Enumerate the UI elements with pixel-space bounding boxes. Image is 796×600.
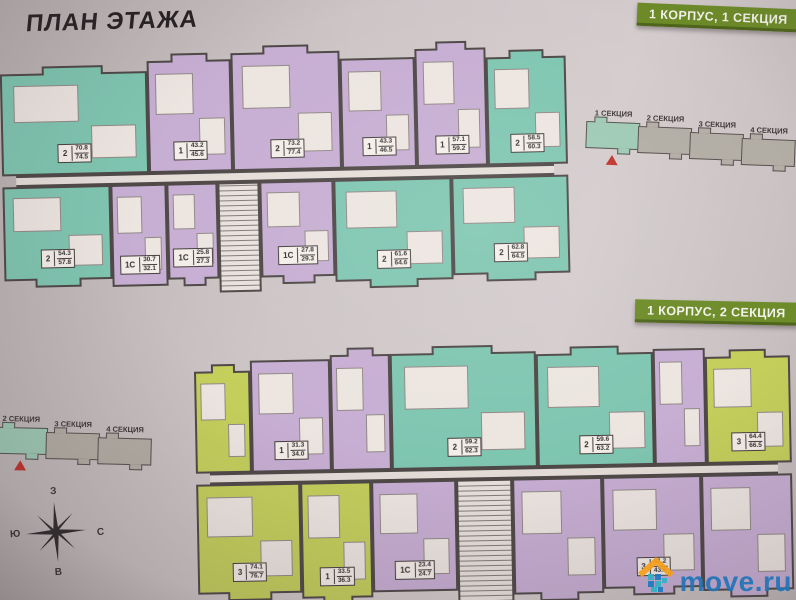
apartment-label: 1 43.245.6 — [173, 141, 208, 161]
apartment-unit: 1 43.245.6 — [146, 59, 233, 173]
compass-left-label: Ю — [10, 529, 21, 541]
locator-section: 3 СЕКЦИЯ — [689, 119, 744, 161]
compass-top-label: З — [50, 486, 57, 497]
total-area: 45.6 — [190, 151, 205, 158]
apartment-unit: 2 58.560.3 — [485, 56, 567, 166]
apartment-type: 2 — [513, 139, 522, 147]
room — [404, 366, 469, 410]
room — [242, 65, 291, 109]
locator-section: 3 СЕКЦИЯ — [45, 419, 100, 460]
watermark-text: move.ru — [680, 569, 792, 594]
label-divider — [414, 563, 415, 578]
badge-1-label: 1 КОРПУС, 1 СЕКЦИЯ — [649, 7, 788, 27]
building-section-badge-1: 1 КОРПУС, 1 СЕКЦИЯ — [637, 3, 796, 33]
balcony — [323, 596, 354, 600]
total-area: 66.5 — [748, 442, 763, 449]
house-icon — [636, 556, 676, 594]
apartment-areas: 57.159.2 — [451, 137, 466, 152]
label-divider — [334, 569, 335, 584]
floorplan-section-1: 2 70.874.5 1 43.245.6 — [0, 46, 571, 290]
apartment-areas: 73.277.4 — [287, 141, 302, 156]
total-area: 36.3 — [337, 577, 352, 584]
label-divider — [448, 137, 449, 152]
room — [480, 412, 525, 451]
label-divider — [745, 434, 746, 449]
room — [13, 197, 61, 232]
apartment-type: 1 — [323, 573, 332, 581]
apartment-type: 1С — [398, 566, 412, 574]
total-area: 76.7 — [249, 572, 264, 579]
badge-2-label: 1 КОРПУС, 2 СЕКЦИЯ — [647, 304, 786, 321]
apartment-label: 2 73.277.4 — [270, 139, 305, 159]
room — [713, 368, 751, 408]
total-area: 27.3 — [196, 258, 211, 265]
apartment-unit — [217, 182, 261, 293]
room — [348, 70, 382, 111]
apartment-unit: 3 64.466.5 — [705, 355, 792, 464]
label-divider — [192, 250, 193, 265]
apartment-label: 2 59.262.3 — [447, 437, 481, 457]
apartment-unit: 2 62.864.5 — [451, 175, 570, 276]
apartment-areas: 59.262.3 — [464, 439, 479, 454]
room — [567, 537, 595, 575]
room — [608, 411, 645, 449]
apartment-unit: 1 31.334.0 — [250, 359, 332, 473]
locator-section-shape — [97, 437, 152, 465]
balcony — [262, 44, 308, 54]
total-area: 63.2 — [596, 445, 611, 452]
label-divider — [297, 248, 298, 263]
total-area: 74.5 — [74, 153, 89, 160]
apartment-type: 2 — [61, 149, 70, 157]
apartment-unit: 2 70.874.5 — [0, 71, 149, 176]
compass-right-label: С — [97, 527, 105, 538]
balcony — [540, 591, 578, 600]
apartment-unit: 1С 23.424.7 — [371, 480, 458, 593]
locator-section-shape — [45, 432, 100, 460]
room — [206, 496, 253, 537]
room — [462, 187, 515, 224]
current-section-marker — [606, 155, 618, 165]
apartment-label: 3 74.176.7 — [233, 562, 267, 582]
apartment-label: 1 57.159.2 — [435, 135, 470, 155]
apartment-label: 1 33.536.3 — [320, 567, 354, 587]
label-divider — [461, 440, 462, 455]
apartment-areas: 59.663.2 — [595, 437, 610, 452]
apartment-areas: 27.829.3 — [300, 247, 315, 262]
apartment-unit — [329, 354, 392, 471]
room — [117, 196, 143, 234]
room — [684, 408, 701, 446]
section-locator-1: 1 СЕКЦИЯ 2 СЕКЦИЯ 3 СЕКЦИЯ 4 СЕКЦИЯ — [585, 108, 794, 156]
balcony — [509, 49, 544, 59]
balcony — [36, 278, 82, 288]
apartment-type: 1 — [365, 142, 374, 150]
balcony — [435, 41, 466, 51]
apartment-unit: 1С 27.829.3 — [259, 180, 336, 278]
apartment-label: 2 59.663.2 — [579, 435, 613, 455]
apartment-areas: 70.874.5 — [74, 145, 89, 160]
apartment-type: 2 — [582, 441, 591, 449]
compass-rose: З Ю С В — [9, 485, 103, 579]
apartment-label: 2 61.664.6 — [377, 249, 412, 269]
room — [91, 124, 137, 158]
label-divider — [284, 141, 285, 156]
balcony — [729, 349, 766, 359]
total-area: 46.5 — [379, 147, 394, 154]
room — [406, 230, 443, 264]
locator-section: 2 СЕКЦИЯ — [637, 113, 692, 155]
total-area: 60.3 — [527, 143, 542, 150]
apartment-unit: 2 54.357.8 — [2, 185, 112, 281]
apartment-label: 1С 30.732.1 — [120, 255, 160, 275]
locator-section-shape — [0, 427, 48, 455]
apartment-label: 1С 23.424.7 — [395, 560, 435, 580]
apartment-type: 1С — [281, 251, 295, 259]
total-area: 62.3 — [464, 447, 479, 454]
apartment-unit: 1 33.536.3 — [300, 481, 373, 598]
label-divider — [592, 437, 593, 452]
label-divider — [288, 443, 289, 458]
label-divider — [524, 136, 525, 151]
apartment-label: 1С 25.827.3 — [173, 248, 213, 268]
balcony — [171, 53, 208, 63]
total-area: 59.2 — [452, 145, 467, 152]
apartment-areas: 62.864.5 — [511, 245, 526, 260]
apartment-unit — [512, 477, 604, 595]
room — [524, 226, 561, 259]
apartment-label: 2 54.357.8 — [41, 249, 76, 269]
locator-section: 2 СЕКЦИЯ — [0, 414, 48, 455]
label-divider — [54, 251, 55, 266]
apartment-type: 2 — [44, 255, 53, 263]
label-divider — [375, 139, 376, 154]
room — [345, 190, 398, 228]
label-divider — [187, 143, 188, 158]
apartment-areas: 74.176.7 — [249, 564, 264, 579]
apartment-areas: 30.732.1 — [142, 257, 157, 272]
apartment-areas: 33.536.3 — [337, 569, 352, 584]
apartment-areas: 31.334.0 — [291, 443, 306, 458]
floorplan-2-top-row: 1 31.334.0 2 — [194, 346, 792, 473]
total-area: 77.4 — [287, 149, 302, 156]
apartment-areas: 25.827.3 — [195, 250, 210, 265]
apartment-areas: 43.245.6 — [190, 143, 205, 158]
label-divider — [390, 252, 391, 267]
apartment-unit: 2 73.277.4 — [231, 51, 342, 171]
move-ru-watermark: move.ru — [636, 556, 792, 594]
balcony — [183, 277, 206, 287]
total-area: 24.7 — [417, 570, 432, 577]
apartment-type: 2 — [451, 443, 460, 451]
room — [200, 383, 226, 421]
balcony — [42, 65, 103, 75]
room — [336, 368, 364, 411]
locator-section: 4 СЕКЦИЯ — [741, 125, 796, 167]
apartment-unit — [194, 371, 252, 474]
total-area: 29.3 — [300, 255, 315, 262]
apartment-type: 1С — [123, 261, 137, 269]
balcony — [228, 591, 272, 600]
page-title: ПЛАН ЭТАЖА — [25, 6, 200, 39]
label-divider — [246, 565, 247, 580]
locator-section: 1 СЕКЦИЯ — [585, 108, 640, 150]
apartment-unit: 1С 30.732.1 — [110, 184, 168, 287]
apartment-label: 1 43.346.5 — [362, 136, 397, 156]
room — [155, 73, 193, 115]
locator-section-shape — [741, 138, 796, 167]
apartment-type: 2 — [273, 145, 282, 153]
apartment-unit: 1 43.346.5 — [340, 57, 418, 169]
apartment-unit: 2 59.663.2 — [536, 352, 656, 467]
room — [547, 366, 600, 408]
total-area: 34.0 — [291, 451, 306, 458]
apartment-unit: 1 57.159.2 — [415, 47, 488, 167]
room — [659, 362, 683, 405]
balcony — [487, 271, 536, 281]
apartment-unit: 3 74.176.7 — [196, 483, 302, 595]
current-section-marker — [14, 460, 26, 470]
balcony — [347, 347, 374, 357]
apartment-areas: 61.664.6 — [393, 251, 408, 266]
total-area: 64.5 — [511, 253, 526, 260]
apartment-areas: 58.560.3 — [527, 135, 542, 150]
apartment-label: 2 58.560.3 — [510, 133, 545, 153]
apartment-type: 3 — [236, 568, 245, 576]
apartment-unit: 1С 25.827.3 — [166, 183, 219, 280]
apartment-label: 2 62.864.5 — [494, 243, 529, 263]
room — [422, 62, 454, 106]
apartment-label: 1 31.334.0 — [274, 441, 308, 461]
apartment-type: 3 — [735, 438, 744, 446]
apartment-label: 1С 27.829.3 — [278, 245, 318, 265]
balcony — [370, 278, 419, 288]
locator-section: 4 СЕКЦИЯ — [97, 424, 152, 465]
room — [228, 424, 246, 458]
apartment-label: 2 70.874.5 — [58, 143, 93, 163]
balcony — [432, 345, 493, 355]
label-divider — [71, 146, 72, 161]
room — [612, 489, 657, 531]
floorplan-1-bottom-row: 2 54.357.8 1С 30.732.1 — [2, 175, 570, 290]
room — [13, 84, 79, 123]
apartment-unit: 2 59.262.3 — [390, 351, 538, 470]
apartment-areas: 54.357.8 — [57, 251, 72, 266]
room — [366, 414, 386, 452]
apartment-areas: 43.346.5 — [378, 139, 393, 154]
room — [521, 491, 562, 534]
compass-bottom-label: В — [54, 567, 62, 578]
apartment-areas: 23.424.7 — [417, 562, 432, 577]
locator-section-shape — [689, 132, 744, 161]
apartment-unit — [653, 348, 706, 465]
room — [172, 194, 196, 230]
room — [711, 487, 752, 530]
balcony — [283, 274, 316, 284]
total-area: 64.6 — [394, 259, 409, 266]
section-locator-2: 1 СЕКЦИЯ 2 СЕКЦИЯ 3 СЕКЦИЯ 4 СЕКЦИЯ — [0, 409, 150, 454]
compass-star-icon — [22, 498, 90, 566]
locator-section-shape — [585, 121, 640, 150]
room — [267, 192, 301, 228]
room — [380, 493, 418, 534]
label-divider — [508, 245, 509, 260]
apartment-type: 2 — [497, 249, 506, 257]
apartment-areas: 64.466.5 — [748, 434, 763, 449]
apartment-type: 1С — [176, 254, 190, 262]
locator-section-shape — [637, 126, 692, 155]
apartment-unit: 2 61.664.6 — [334, 177, 454, 282]
floorplan-1-top-row: 2 70.874.5 1 43.245.6 — [0, 46, 568, 177]
apartment-type: 1 — [277, 446, 286, 454]
apartment-type: 1 — [438, 141, 447, 149]
total-area: 32.1 — [142, 265, 157, 272]
balcony — [569, 346, 619, 356]
label-divider — [139, 257, 140, 272]
room — [308, 495, 340, 538]
room — [494, 69, 530, 109]
building-section-badge-2: 1 КОРПУС, 2 СЕКЦИЯ — [635, 299, 796, 325]
apartment-type: 2 — [380, 255, 389, 263]
room — [258, 373, 294, 415]
balcony — [210, 364, 235, 373]
total-area: 57.8 — [57, 259, 72, 266]
floor-plan-poster-photo: ПЛАН ЭТАЖА 1 КОРПУС, 1 СЕКЦИЯ 1 КОРПУС, … — [0, 0, 796, 600]
apartment-label: 3 64.466.5 — [732, 432, 766, 452]
apartment-unit — [456, 479, 515, 600]
apartment-type: 1 — [176, 147, 185, 155]
